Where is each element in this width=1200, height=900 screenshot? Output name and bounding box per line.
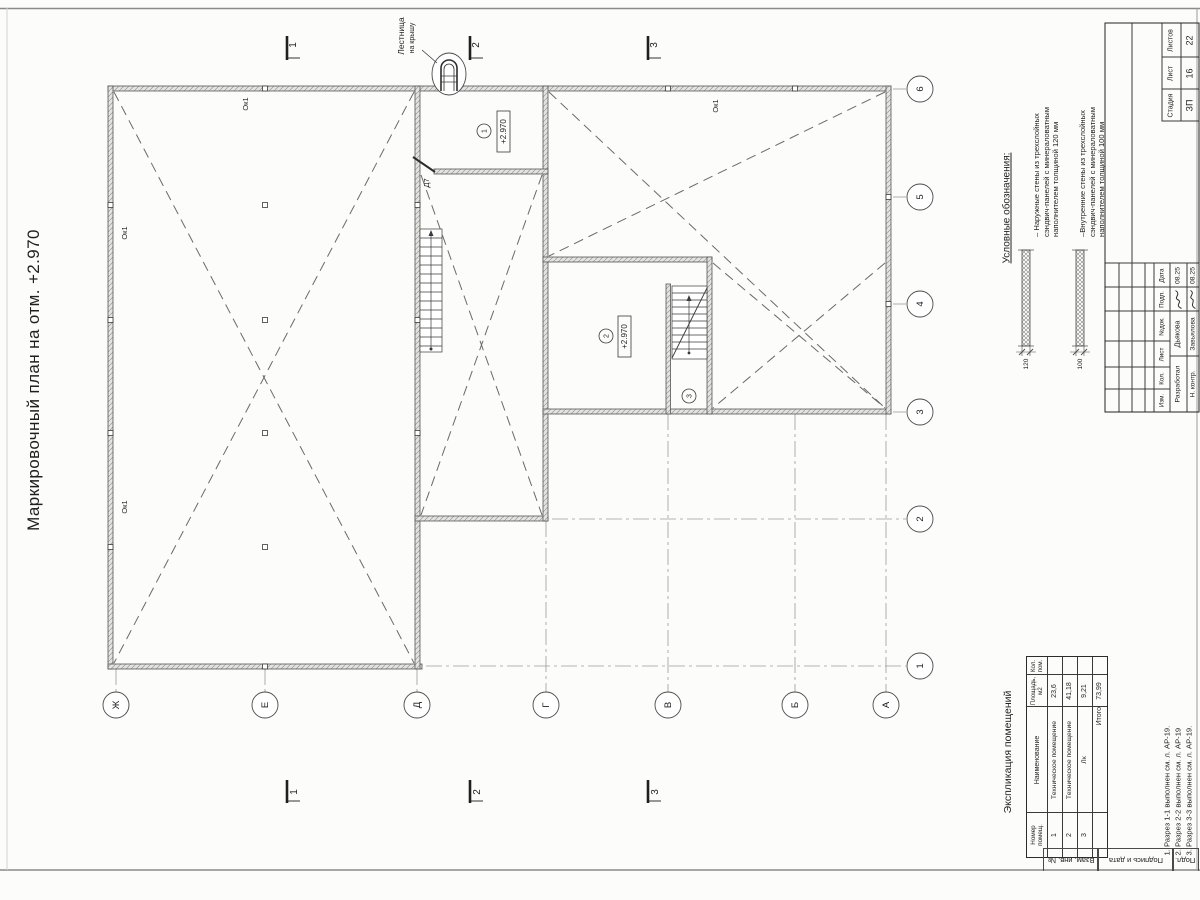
- svg-text:Е: Е: [260, 702, 271, 708]
- room-number: 1: [482, 129, 489, 133]
- axis-bubbles-numbers: 6 5 4 3 2 1: [907, 76, 933, 679]
- ladder-label-2: на крышу: [409, 22, 416, 53]
- note-line: 1. Разрез 1-1 выполнен см. л. АР-19.: [1162, 695, 1173, 856]
- svg-text:5: 5: [915, 194, 926, 199]
- section-marks-top: 1 2 3: [287, 36, 661, 60]
- room-schedule-table: Номер помещ. Наименование Площадь, м2 Ко…: [1026, 656, 1108, 858]
- svg-text:4: 4: [915, 301, 926, 306]
- stamp-role: Разработал: [1169, 356, 1186, 411]
- stamp-sheet-label: Лист: [1161, 57, 1180, 89]
- stamp-header-izm: Изм.: [1153, 389, 1169, 411]
- window-label: Ок1: [241, 97, 250, 110]
- legend-dim-100: 100: [1077, 358, 1084, 369]
- door-label: Д7: [422, 178, 431, 187]
- svg-text:А: А: [881, 701, 892, 708]
- legend-dim-120: 120: [1023, 358, 1030, 369]
- svg-text:2: 2: [915, 516, 926, 521]
- stamp-name: Завьялова: [1186, 311, 1198, 356]
- window-label: Ок1: [711, 99, 720, 112]
- svg-text:1: 1: [288, 42, 299, 48]
- schedule-header-area: Площадь, м2: [1027, 675, 1047, 707]
- elevation-value: +2.970: [620, 324, 629, 349]
- stair-flight-1: [420, 229, 442, 352]
- svg-text:В: В: [663, 702, 674, 708]
- schedule-cell: 41,18: [1062, 675, 1077, 707]
- axis-bubbles-letters: Ж Е Д Г В Б А: [103, 692, 899, 718]
- svg-text:3: 3: [649, 42, 660, 48]
- margin-box-vzam-inv: Взам. инв. №: [1043, 848, 1099, 871]
- room-number: 3: [687, 394, 694, 398]
- schedule-cell: 9,21: [1077, 675, 1092, 707]
- margin-box-podl: Подл.: [1172, 848, 1199, 871]
- sheet-frame: [0, 8, 1200, 870]
- room-number: 2: [604, 334, 611, 338]
- window-label: Ок1: [120, 500, 129, 513]
- margin-box-podpis-data: Подпись и дата: [1097, 848, 1174, 871]
- svg-text:1: 1: [289, 789, 300, 795]
- legend-title: Условные обозначения:: [1002, 141, 1016, 276]
- svg-text:2: 2: [472, 789, 483, 795]
- svg-text:Д: Д: [412, 701, 423, 708]
- svg-text:Б: Б: [790, 702, 801, 708]
- stamp-header-data: Дата: [1153, 263, 1169, 287]
- stamp-name: Дьякова: [1169, 311, 1186, 356]
- svg-text:Ж: Ж: [111, 700, 122, 709]
- schedule-cell: Техническое помещение: [1062, 707, 1077, 813]
- svg-text:Г: Г: [541, 702, 552, 707]
- room-schedule-title: Экспликация помещений: [1002, 677, 1018, 827]
- page-title: Маркировочный план на отм. +2.970: [24, 225, 48, 535]
- section-notes: 1. Разрез 1-1 выполнен см. л. АР-19. 2. …: [1162, 695, 1196, 856]
- schedule-cell: Лк: [1077, 707, 1092, 813]
- signature: [1186, 287, 1198, 311]
- svg-text:3: 3: [650, 789, 661, 795]
- schedule-cell: 23,6: [1047, 675, 1062, 707]
- elevation-value: +2.970: [499, 119, 508, 144]
- stamp-sheets-label: Листов: [1161, 23, 1180, 57]
- drawing-sheet: { "sheet": { "title": "Маркировочный пла…: [0, 0, 1200, 900]
- stamp-date: 08.25: [1169, 263, 1186, 287]
- stamp-sheet-value: 16: [1180, 57, 1198, 89]
- section-marks-bottom: 1 2 3: [287, 780, 661, 803]
- schedule-total-value: 73,99: [1092, 675, 1107, 707]
- signature: [1169, 287, 1186, 311]
- stamp-header-podp: Подп.: [1153, 287, 1169, 311]
- schedule-cell: Техническое помещение: [1047, 707, 1062, 813]
- roof-brace-lines: [114, 92, 885, 663]
- walls: [108, 86, 891, 669]
- legend-item-exterior-walls: – Наружные стены из трехслойных сэндвич-…: [1032, 27, 1062, 237]
- note-line: 2. Разрез 2-2 выполнен см. л. АР-19: [1173, 695, 1184, 856]
- title-block: Изм. Кол. Лист №док. Подп. Дата Разработ…: [1104, 22, 1199, 412]
- schedule-header-count: Кол. пом.: [1027, 657, 1047, 675]
- floor-plan-canvas: Лестница на крышу 1 2 3 1 2 3 Ж Е Д Г: [0, 0, 1200, 900]
- svg-text:2: 2: [471, 42, 482, 48]
- svg-text:6: 6: [915, 86, 926, 91]
- roof-ladder: Лестница на крышу: [396, 17, 466, 95]
- stamp-header-ndok: №док.: [1153, 311, 1169, 341]
- stamp-header-kol: Кол.: [1153, 367, 1169, 389]
- legend-item-interior-walls: –Внутренние стены из трехслойных сэндвич…: [1078, 27, 1108, 237]
- axis-grid-lines: [116, 89, 906, 692]
- stamp-date: 08.25: [1186, 263, 1198, 287]
- stamp-stage-label: Стадия: [1161, 89, 1180, 121]
- stair-flight-2: [672, 286, 707, 359]
- ladder-label: Лестница: [396, 17, 406, 55]
- stamp-header-list: Лист: [1153, 341, 1169, 367]
- schedule-header-name: Наименование: [1027, 707, 1047, 813]
- stamp-role: Н. контр.: [1186, 356, 1198, 411]
- window-label: Ок1: [120, 226, 129, 239]
- svg-text:1: 1: [915, 663, 926, 668]
- note-line: 3. Разрез 3-3 выполнен см. л. АР-19.: [1184, 695, 1195, 856]
- stamp-stage-value: ЗП: [1180, 89, 1198, 121]
- legend-wall-samples: 120 100: [1016, 250, 1090, 369]
- stamp-sheets-value: 22: [1180, 23, 1198, 57]
- svg-text:3: 3: [915, 409, 926, 414]
- schedule-total-label: Итого: [1092, 703, 1107, 813]
